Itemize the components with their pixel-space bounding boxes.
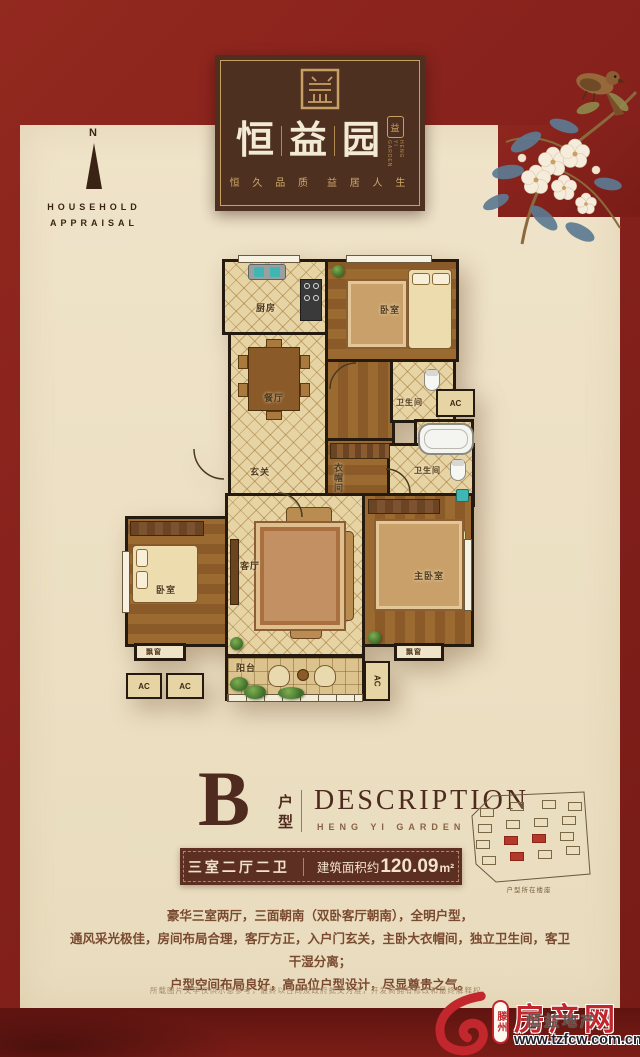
description-paragraph: 豪华三室两厅，三面朝南（双卧客厅朝南），全明户型， 通风采光极佳，房间布局合理，… <box>70 905 570 998</box>
brand-separator <box>281 126 282 156</box>
label-bay-window: 飘窗 <box>406 647 422 657</box>
site-building <box>534 818 548 827</box>
description-subheading: HENG YI GARDEN <box>317 822 465 832</box>
floor-plan: AC AC AC AC <box>118 253 475 703</box>
compass-caption-line2: APPRAISAL <box>38 215 150 231</box>
area-unit: m² <box>439 861 454 875</box>
compass-needle-icon <box>86 143 102 189</box>
label-bedroom: 卧室 <box>156 583 176 596</box>
brand-tagline: 恒 久 品 质益 居 人 生 <box>230 174 411 189</box>
spec-rooms: 三室二厅二卫 <box>188 857 290 877</box>
site-building <box>506 820 520 829</box>
brand-char-heng: 恒 <box>236 122 274 160</box>
brand-plaque: 恒 益 园 益 HENG YI GARDEN 恒 久 品 质益 居 人 生 <box>215 55 425 211</box>
mini-seal-icon: 益 <box>387 116 404 138</box>
label-kitchen: 厨房 <box>256 301 276 314</box>
label-bathroom: 卫生间 <box>414 465 441 476</box>
label-cloakroom: 衣帽间 <box>332 463 345 493</box>
label-entry: 玄关 <box>250 465 270 478</box>
site-building <box>562 816 576 825</box>
footer-ornament <box>0 1008 240 1057</box>
site-building <box>538 850 552 859</box>
label-bathroom: 卫生间 <box>396 397 423 408</box>
door-arcs <box>118 253 475 703</box>
site-building <box>480 808 494 817</box>
site-building <box>510 802 524 811</box>
site-building-highlighted <box>510 852 524 861</box>
watermark-city: 滕州 <box>493 1011 508 1033</box>
heading-divider <box>301 790 302 832</box>
brand-char-yi: 益 <box>289 122 327 160</box>
label-bedroom: 卧室 <box>380 303 400 316</box>
site-building <box>476 840 490 849</box>
area-value: 120.09 <box>380 856 438 878</box>
label-dining: 餐厅 <box>264 391 284 404</box>
site-building <box>568 802 582 811</box>
brand-char-yuan: 园 <box>342 122 380 160</box>
compass: N HOUSEHOLD APPRAISAL <box>38 127 150 231</box>
label-balcony: 阳台 <box>236 661 256 674</box>
spec-divider <box>303 858 304 876</box>
site-building <box>478 824 492 833</box>
site-building <box>482 856 496 865</box>
yi-seal-icon <box>294 64 346 114</box>
site-map-caption: 户型所在楼座 <box>462 884 596 894</box>
unit-type-letter: B <box>198 760 250 838</box>
watermark-city-badge: 滕州 <box>492 1000 509 1044</box>
label-bay-window: 飘窗 <box>146 647 162 657</box>
compass-north-label: N <box>38 127 150 139</box>
site-building <box>566 846 580 855</box>
site-building-highlighted <box>532 834 546 843</box>
watermark-url: www.tzfcw.com.cn <box>514 1032 640 1048</box>
site-building <box>542 800 556 809</box>
watermark-overlay-text: 恒益地产 <box>526 1010 598 1031</box>
bird-blossom-art-icon <box>468 42 640 254</box>
description-line: 豪华三室两厅，三面朝南（双卧客厅朝南），全明户型， <box>70 905 570 928</box>
label-master: 主卧室 <box>414 569 444 582</box>
brand-separator <box>334 126 335 156</box>
spec-area: 建筑面积约120.09m² <box>317 856 454 878</box>
compass-caption-line1: HOUSEHOLD <box>38 199 150 215</box>
site-building <box>560 832 574 841</box>
watermark: 滕州 房产网 恒益地产 www.tzfcw.com.cn <box>430 992 640 1057</box>
brand-english-caption: HENG YI GARDEN <box>386 140 404 166</box>
spec-bar: 三室二厅二卫 建筑面积约120.09m² <box>180 848 462 885</box>
site-map: 户型所在楼座 <box>462 790 596 894</box>
label-living: 客厅 <box>240 559 260 572</box>
site-building-highlighted <box>504 836 518 845</box>
description-line: 通风采光极佳，房间布局合理，客厅方正，入户门玄关，主卧大衣帽间，独立卫生间，客卫… <box>70 928 570 974</box>
unit-type-label: 户型 <box>274 794 295 834</box>
poster: N HOUSEHOLD APPRAISAL 恒 益 园 益 HENG <box>0 0 640 1057</box>
